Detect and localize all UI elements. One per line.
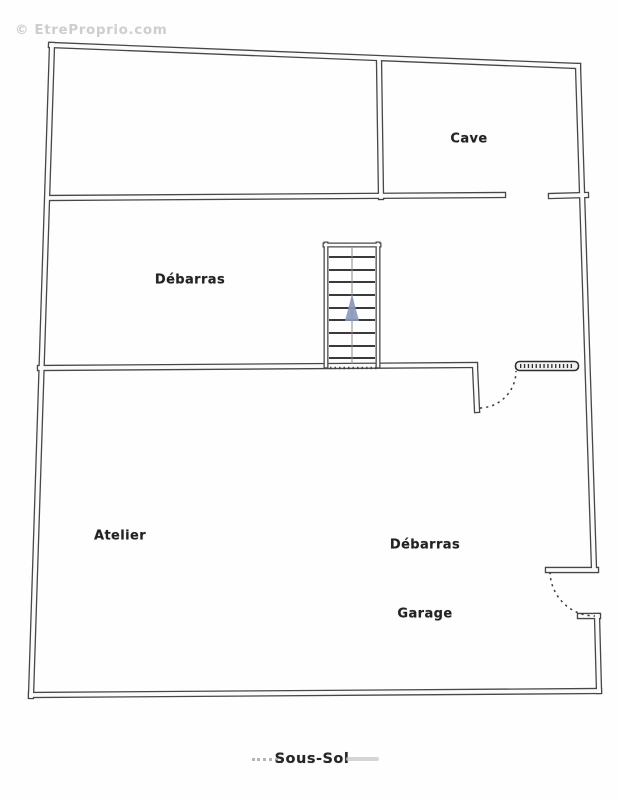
walls-outline <box>31 45 599 696</box>
door-swing-arc-middle <box>480 371 516 408</box>
hatched-door-leaf <box>516 362 579 371</box>
door-swing-arc-garage <box>550 572 595 616</box>
room-label-debarras-lower: Débarras <box>390 538 460 553</box>
staircase <box>325 244 379 368</box>
floorplan-drawing <box>0 0 618 800</box>
scale-bar <box>346 757 379 761</box>
room-label-cave: Cave <box>450 132 487 147</box>
floorplan-page: © EtreProprio.com <box>0 0 618 800</box>
room-label-debarras-upper: Débarras <box>155 273 225 288</box>
plan-title: Sous-Sol <box>275 751 350 767</box>
room-label-atelier: Atelier <box>94 529 146 544</box>
room-label-garage: Garage <box>397 607 452 622</box>
